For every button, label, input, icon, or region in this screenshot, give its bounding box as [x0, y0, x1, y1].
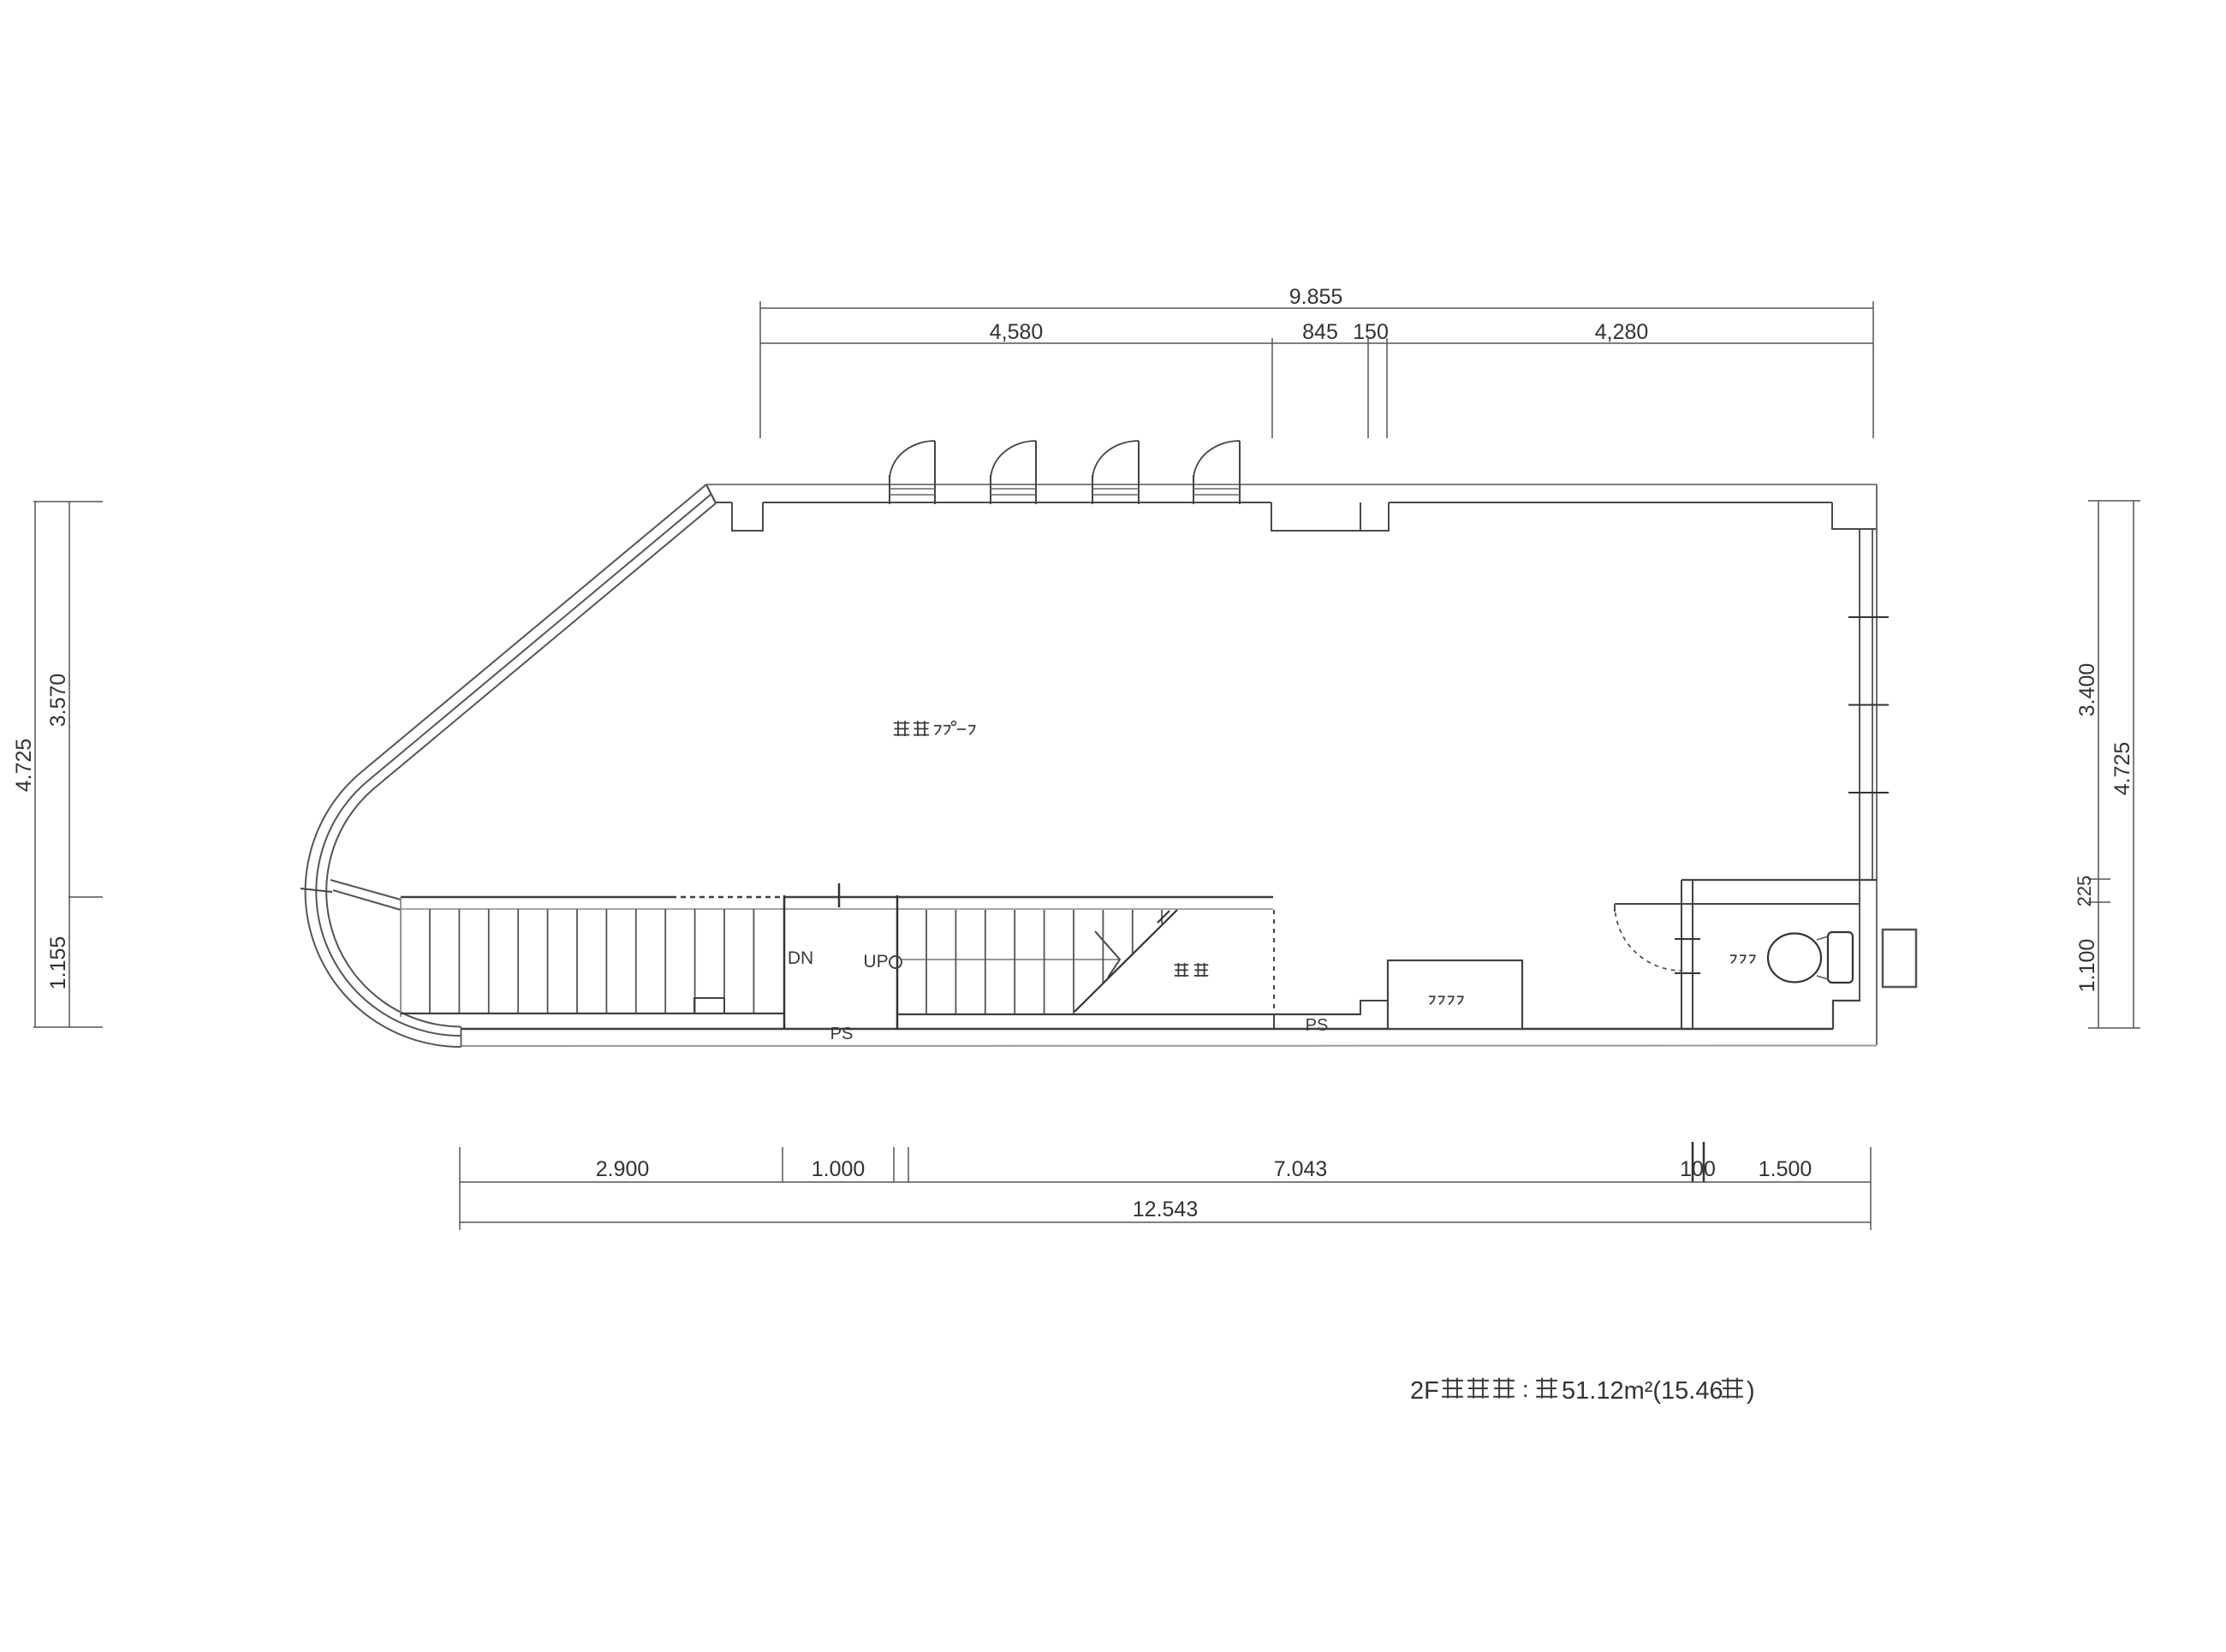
svg-text:1.500: 1.500 — [1759, 1157, 1812, 1181]
svg-text:7.043: 7.043 — [1274, 1157, 1328, 1181]
svg-text:225: 225 — [2074, 876, 2095, 907]
svg-text:4.725: 4.725 — [2110, 742, 2134, 796]
svg-text:DN: DN — [788, 948, 813, 968]
svg-text:4,280: 4,280 — [1595, 320, 1649, 344]
svg-text:150: 150 — [1353, 320, 1389, 344]
svg-text:PS: PS — [830, 1025, 854, 1043]
svg-text::: : — [1522, 1376, 1529, 1402]
svg-text:2F: 2F — [1410, 1377, 1439, 1405]
svg-text:UP: UP — [863, 952, 888, 972]
svg-text:1.155: 1.155 — [46, 936, 70, 990]
svg-text:3.400: 3.400 — [2075, 663, 2099, 717]
svg-text:3.570: 3.570 — [46, 674, 70, 728]
svg-text:1.000: 1.000 — [812, 1157, 866, 1181]
svg-text:PS: PS — [1306, 1016, 1329, 1035]
svg-text:4,580: 4,580 — [990, 320, 1044, 344]
svg-text:845: 845 — [1302, 320, 1338, 344]
svg-text:4.725: 4.725 — [12, 739, 36, 793]
svg-text:12.543: 12.543 — [1133, 1197, 1198, 1221]
svg-text:2.900: 2.900 — [596, 1157, 650, 1181]
svg-text:): ) — [1747, 1377, 1755, 1405]
svg-text:1.100: 1.100 — [2075, 939, 2099, 993]
svg-text:9.855: 9.855 — [1289, 285, 1343, 309]
svg-text:100: 100 — [1680, 1157, 1716, 1181]
svg-text:51.12m²(15.46: 51.12m²(15.46 — [1562, 1377, 1723, 1405]
